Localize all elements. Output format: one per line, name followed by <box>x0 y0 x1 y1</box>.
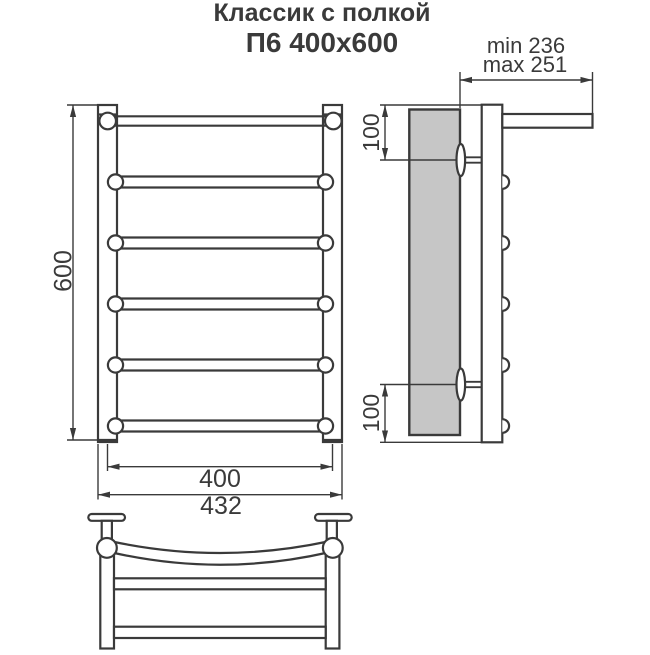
front-left-post <box>98 105 117 442</box>
side-depth-max-dimension-label: max 251 <box>483 52 567 77</box>
product-title: Классик с полкой П6 400x600 <box>214 0 431 58</box>
front-rung <box>108 296 333 311</box>
front-view: 600 <box>50 105 343 520</box>
front-dimension-bar-width: 400 <box>108 444 333 493</box>
side-post <box>482 105 503 443</box>
front-dimension-height: 600 <box>50 105 99 440</box>
side-top-mount-dimension-label: 100 <box>358 113 384 151</box>
top-right-joint <box>323 538 343 558</box>
top-right-post <box>326 550 340 649</box>
shelf <box>502 114 592 128</box>
top-view <box>88 514 351 649</box>
front-rung <box>108 174 333 189</box>
front-rung <box>108 418 333 433</box>
product-title-line2: П6 400x600 <box>246 27 398 58</box>
wall <box>409 110 460 436</box>
top-left-post <box>100 550 114 649</box>
side-dimension-depth: min 236 max 251 <box>460 33 593 114</box>
side-bottom-bracket <box>457 369 482 401</box>
side-dimension-top-mount: 100 <box>358 105 385 160</box>
top-curved-bar <box>112 542 328 565</box>
front-rung <box>108 357 333 372</box>
front-bar-width-dimension-label: 400 <box>199 465 241 493</box>
side-dimension-bottom-mount: 100 <box>358 385 385 443</box>
front-right-post <box>323 105 342 442</box>
side-view: 100 100 min 236 max 251 <box>358 33 593 442</box>
front-overall-width-dimension-label: 432 <box>200 492 242 520</box>
top-shelf-bar <box>114 578 326 589</box>
product-title-line1: Классик с полкой <box>214 0 431 27</box>
side-bottom-mount-dimension-label: 100 <box>358 394 384 432</box>
front-top-bar <box>99 113 341 130</box>
front-top-bar-right-joint <box>325 113 342 130</box>
front-rung <box>108 235 333 250</box>
front-top-bar-left-joint <box>99 113 116 130</box>
technical-drawing: Классик с полкой П6 400x600 600 <box>0 0 650 650</box>
top-shelf-bar <box>114 627 326 638</box>
side-top-bracket <box>457 144 482 176</box>
top-left-joint <box>97 538 117 558</box>
front-height-dimension-label: 600 <box>50 250 78 292</box>
